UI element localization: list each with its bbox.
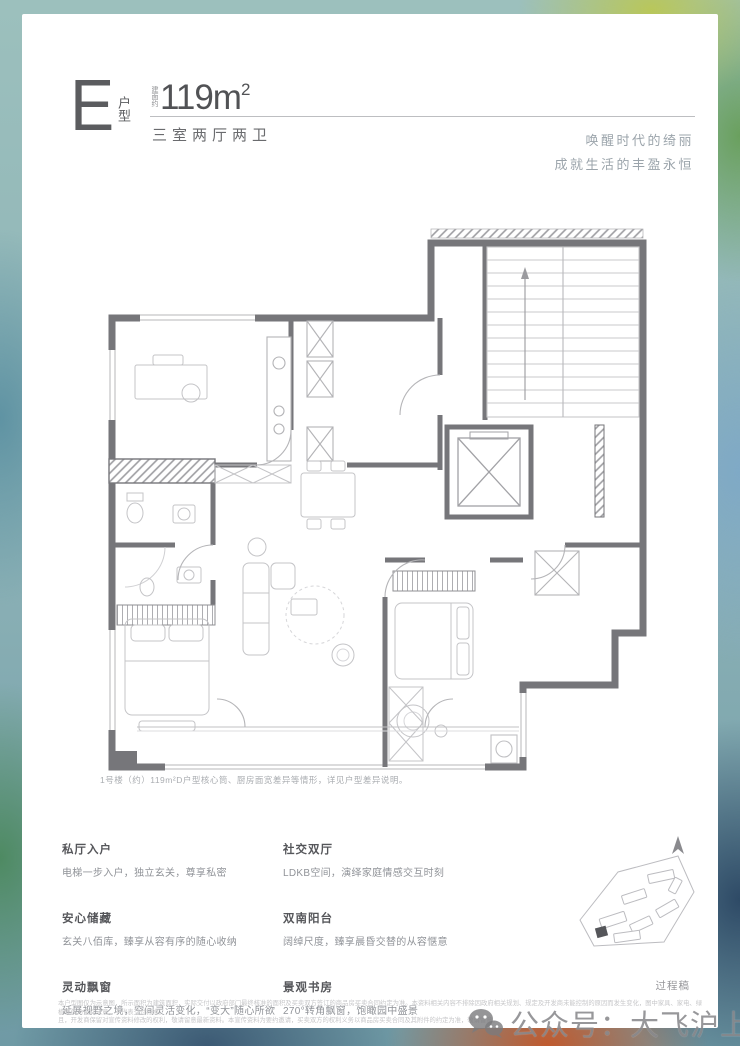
- feature-title: 灵动飘窗: [62, 979, 283, 995]
- feature-column-right: 社交双厅 LDKB空间，演绎家庭情感交互时刻 双南阳台 阔绰尺度，臻享晨昏交替的…: [283, 841, 504, 1017]
- feature-desc: 电梯一步入户，独立玄关，尊享私密: [62, 864, 283, 879]
- slogan-line-2: 成就生活的丰盈永恒: [554, 154, 694, 173]
- corner-wall: [109, 751, 137, 769]
- feature-list: 私厅入户 电梯一步入户，独立玄关，尊享私密 安心储藏 玄关八佰库，臻享从容有序的…: [62, 841, 542, 1017]
- feature-column-left: 私厅入户 电梯一步入户，独立玄关，尊享私密 安心储藏 玄关八佰库，臻享从容有序的…: [62, 841, 283, 1017]
- feature-title: 私厅入户: [62, 841, 283, 857]
- area-superscript: 2: [241, 80, 249, 99]
- feature-item: 双南阳台 阔绰尺度，臻享晨昏交替的从容惬意: [283, 910, 504, 948]
- stairs: [487, 247, 639, 417]
- floor-plan-drawing: [95, 215, 655, 775]
- unit-letter: E: [70, 68, 114, 144]
- feature-item: 私厅入户 电梯一步入户，独立玄关，尊享私密: [62, 841, 283, 879]
- feature-item: 社交双厅 LDKB空间，演绎家庭情感交互时刻: [283, 841, 504, 879]
- feature-title: 安心储藏: [62, 910, 283, 926]
- plan-difference-note: 1号楼（约）119m²D户型核心筒、厨房面宽差异等情形，详见户型差异说明。: [100, 774, 408, 786]
- feature-desc: 阔绰尺度，臻享晨昏交替的从容惬意: [283, 933, 504, 948]
- feature-title: 景观书房: [283, 979, 504, 995]
- feature-desc: LDKB空间，演绎家庭情感交互时刻: [283, 864, 504, 879]
- unit-type-label: 户型: [116, 96, 132, 122]
- slogan-line-1: 唤醒时代的绮丽: [585, 130, 694, 149]
- area-value: 119m2: [160, 78, 249, 118]
- draft-stage-label: 过程稿: [656, 978, 691, 993]
- hatched-wall: [109, 459, 215, 483]
- header-divider: [150, 116, 695, 117]
- hatched-wall: [595, 425, 604, 517]
- watermark: 公众号：大飞沪上探房: [468, 1002, 740, 1044]
- room-layout-text: 三室两厅两卫: [152, 124, 272, 145]
- feature-title: 社交双厅: [283, 841, 504, 857]
- wardrobe: [393, 571, 475, 591]
- area-prefix-label: 建面约: [148, 86, 158, 107]
- foyer-closet: [535, 551, 579, 595]
- elevator: [447, 427, 531, 517]
- wardrobe: [117, 605, 215, 625]
- feature-desc: 玄关八佰库，臻享从容有序的随心收纳: [62, 933, 283, 948]
- dimension-strip: [431, 229, 643, 238]
- feature-item: 安心储藏 玄关八佰库，臻享从容有序的随心收纳: [62, 910, 283, 948]
- feature-title: 双南阳台: [283, 910, 504, 926]
- area-group: 建面约 119m2: [148, 78, 249, 118]
- poster-card: E 户型 建面约 119m2 三室两厅两卫 唤醒时代的绮丽 成就生活的丰盈永恒: [22, 14, 718, 1028]
- wechat-icon: [468, 1007, 504, 1039]
- site-plan-map: [560, 820, 710, 970]
- north-arrow-icon: [672, 836, 684, 854]
- watermark-text: 公众号：大飞沪上探房: [510, 1002, 740, 1044]
